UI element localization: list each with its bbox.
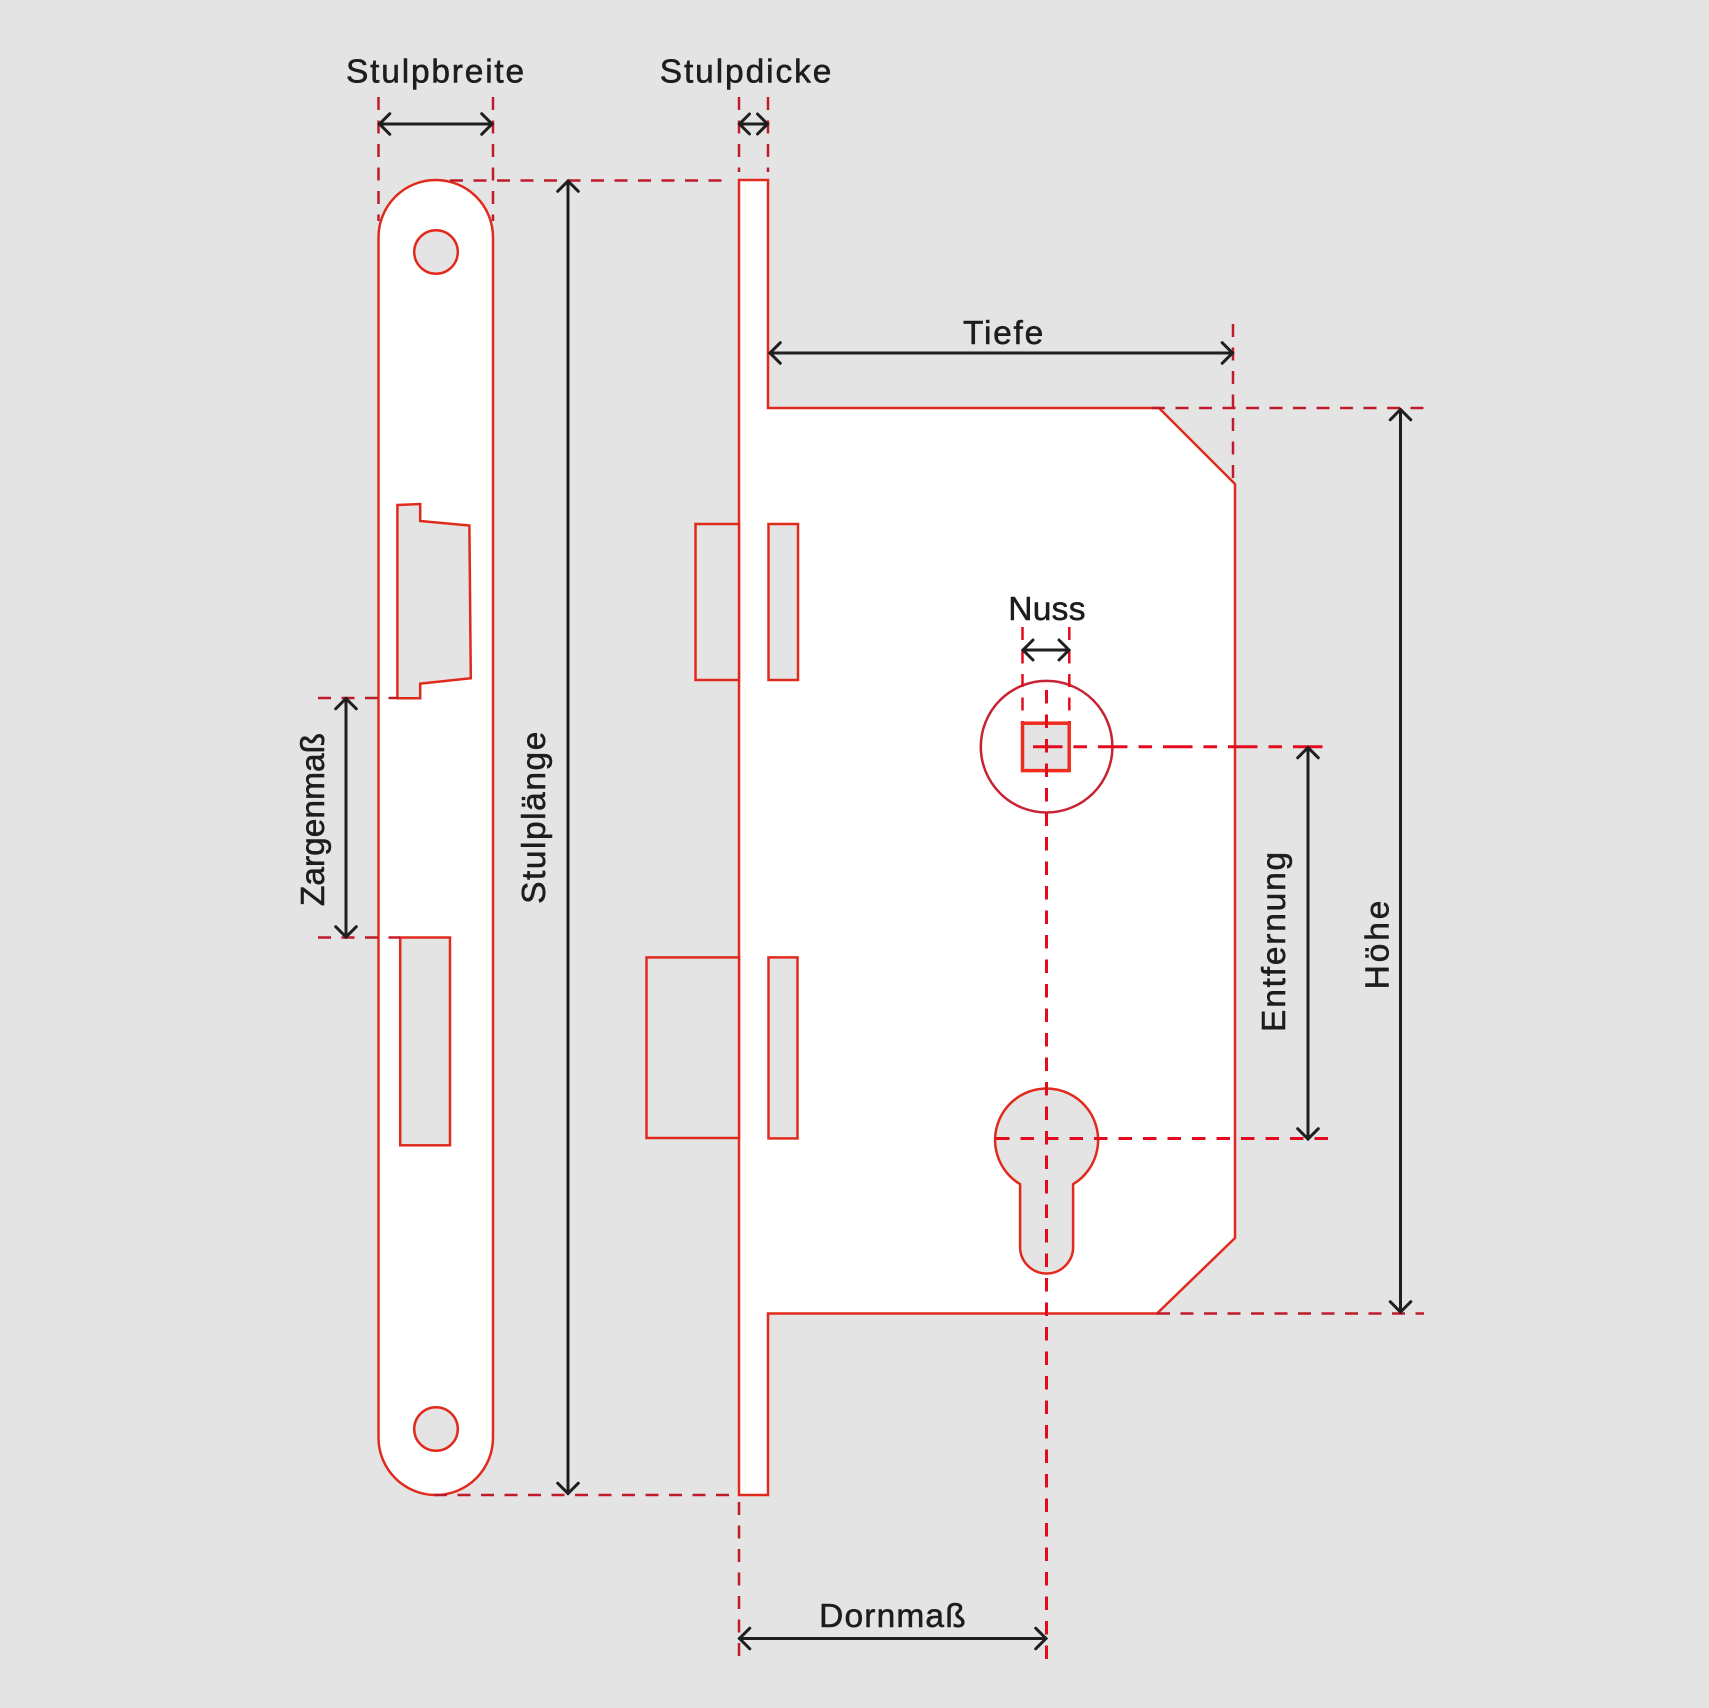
svg-text:Stulpdicke: Stulpdicke <box>660 54 834 91</box>
svg-text:Zargenmaß: Zargenmaß <box>295 733 332 906</box>
svg-text:Dornmaß: Dornmaß <box>819 1598 967 1635</box>
svg-text:Nuss: Nuss <box>1008 591 1086 628</box>
svg-text:Höhe: Höhe <box>1360 898 1397 990</box>
svg-text:Stulplänge: Stulplänge <box>516 730 553 904</box>
svg-text:Tiefe: Tiefe <box>963 315 1045 352</box>
svg-text:Stulpbreite: Stulpbreite <box>346 54 526 91</box>
svg-text:Entfernung: Entfernung <box>1256 850 1293 1032</box>
